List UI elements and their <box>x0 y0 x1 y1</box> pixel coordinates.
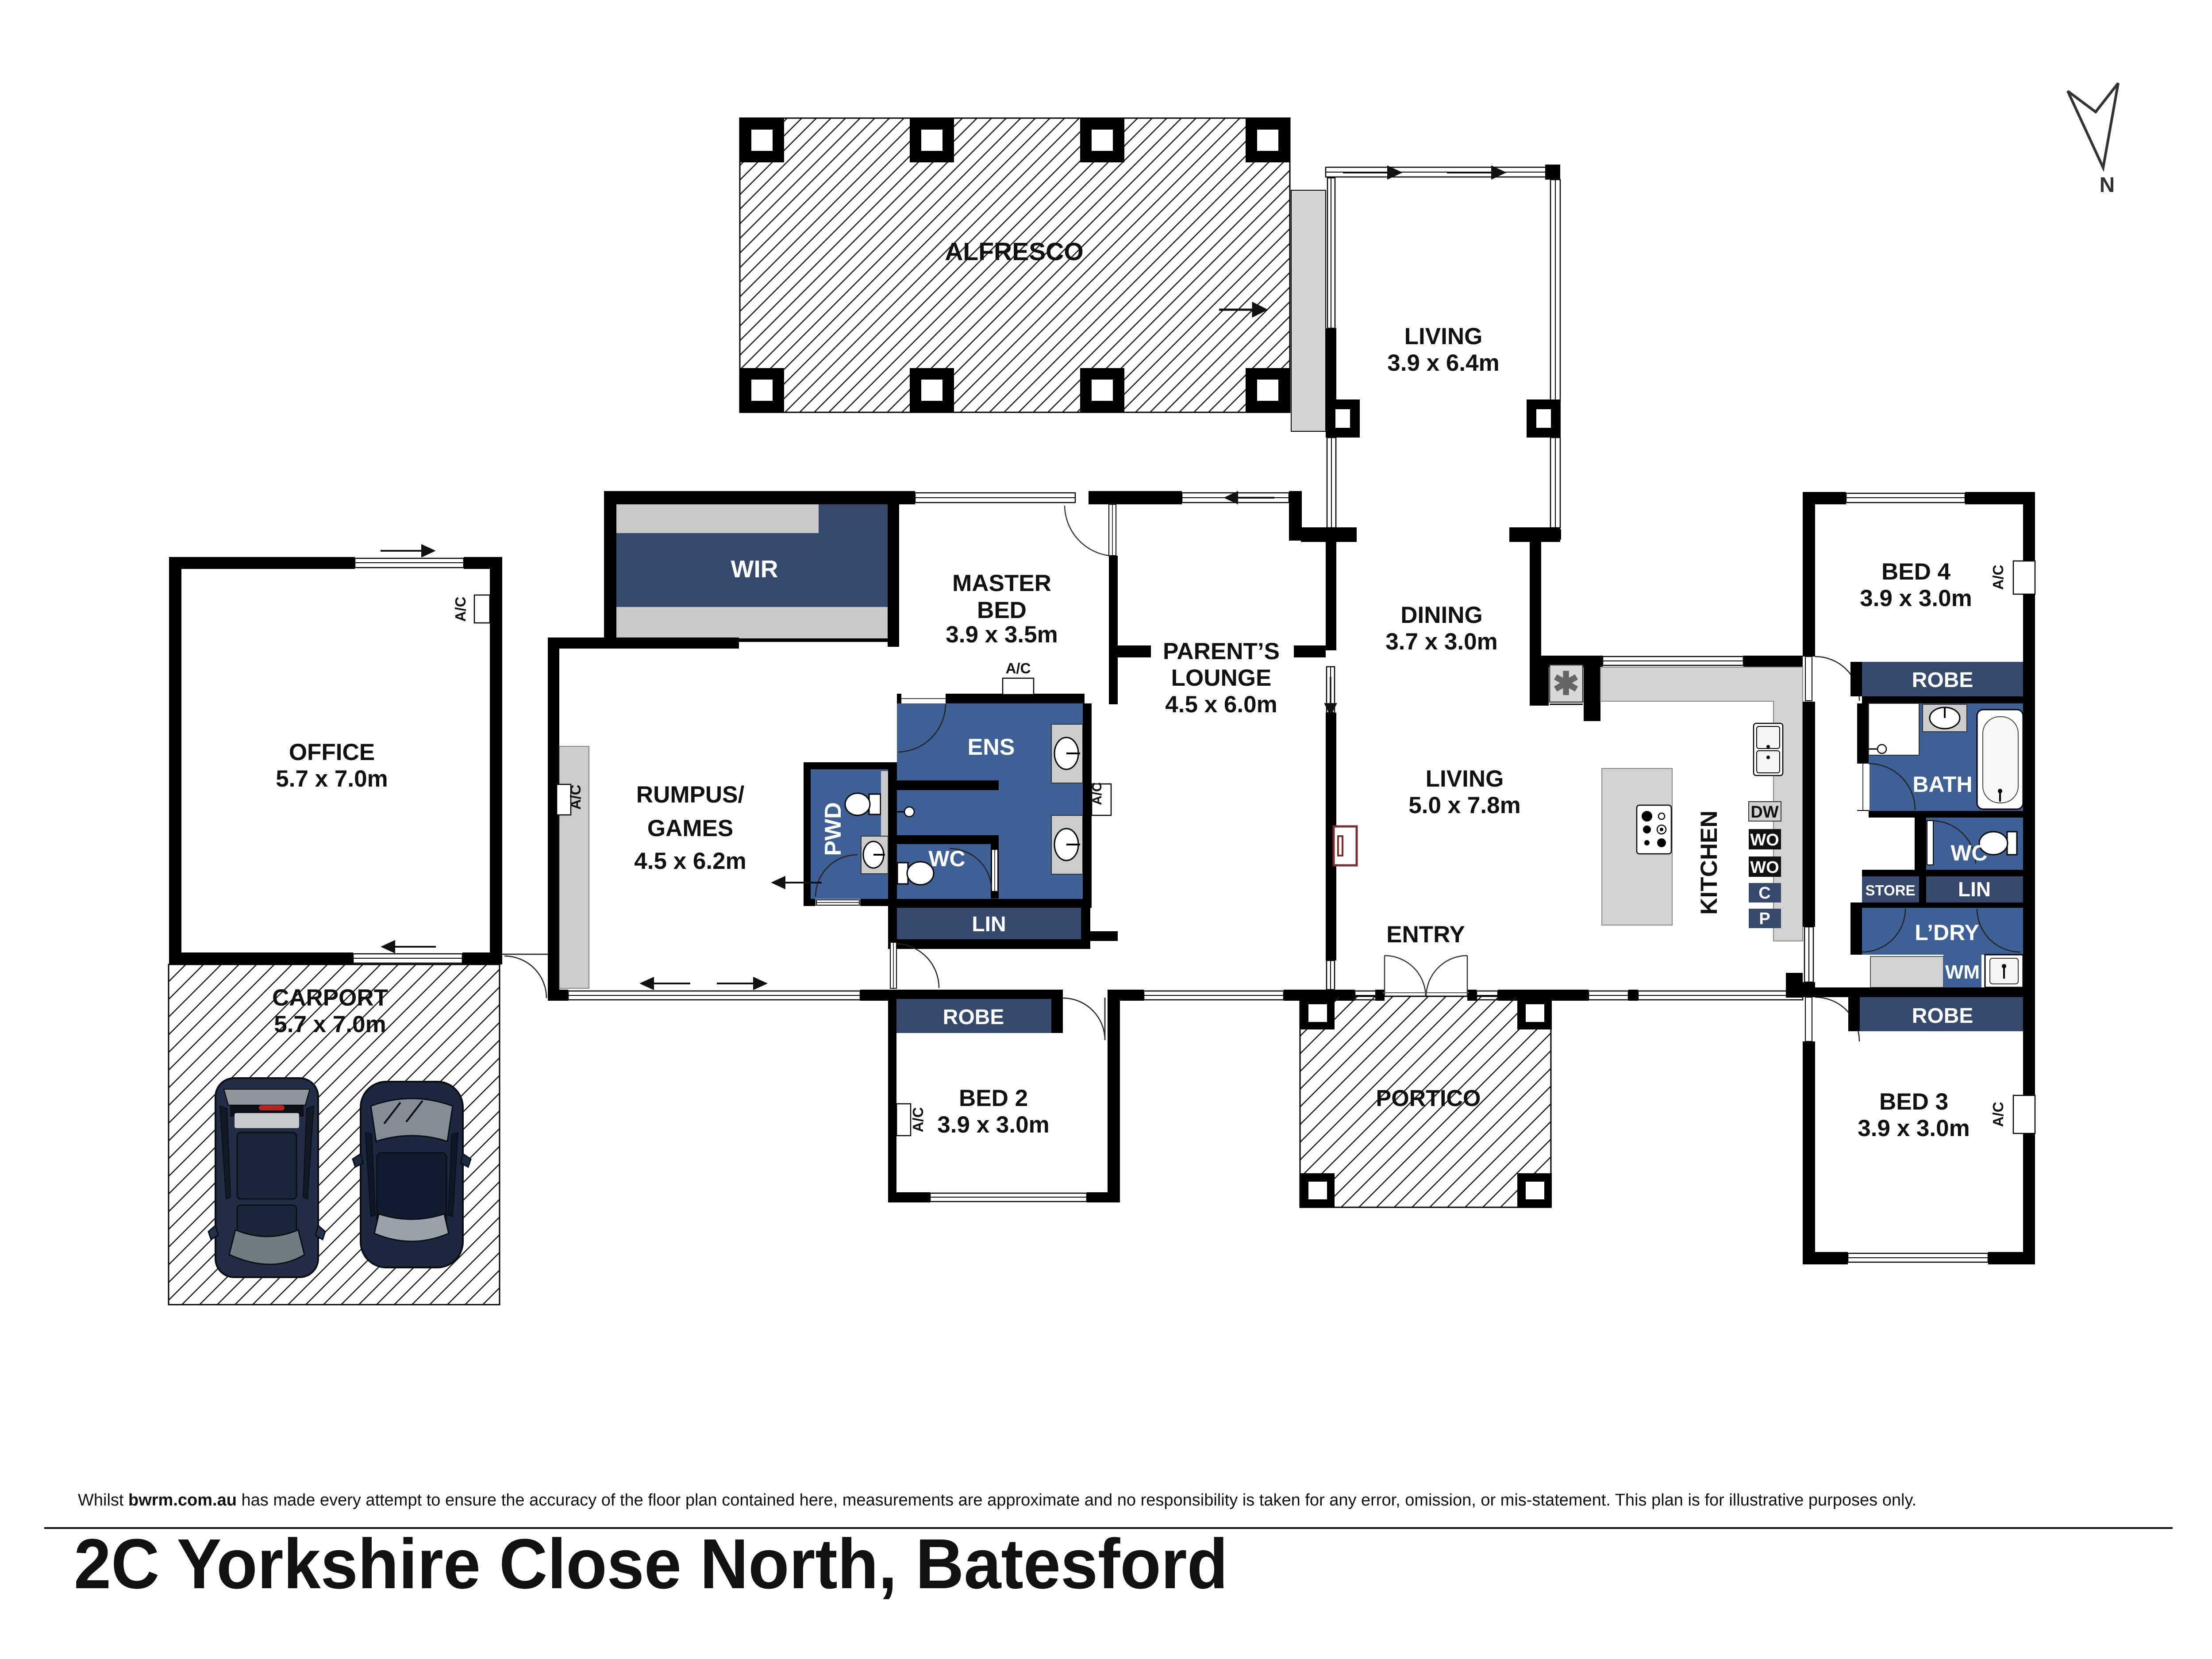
svg-text:3.9 x 6.4m: 3.9 x 6.4m <box>1387 350 1499 376</box>
svg-text:3.9 x 3.0m: 3.9 x 3.0m <box>937 1112 1049 1138</box>
svg-text:PORTICO: PORTICO <box>1376 1086 1481 1111</box>
svg-text:ROBE: ROBE <box>1912 1004 1973 1028</box>
svg-text:A/C: A/C <box>567 785 584 810</box>
svg-text:WC: WC <box>1950 841 1987 865</box>
svg-text:PWD: PWD <box>820 802 846 856</box>
svg-text:WO: WO <box>1750 831 1779 849</box>
svg-text:A/C: A/C <box>1006 660 1031 676</box>
svg-text:ROBE: ROBE <box>1912 668 1973 692</box>
svg-text:WIR: WIR <box>731 555 778 583</box>
svg-text:CARPORT: CARPORT <box>272 985 388 1011</box>
svg-text:ALFRESCO: ALFRESCO <box>945 238 1084 266</box>
svg-text:ROBE: ROBE <box>943 1006 1004 1029</box>
svg-text:ENS: ENS <box>968 734 1015 760</box>
svg-text:5.0 x 7.8m: 5.0 x 7.8m <box>1408 792 1520 818</box>
svg-text:STORE: STORE <box>1865 882 1915 899</box>
svg-text:5.7 x 7.0m: 5.7 x 7.0m <box>276 766 388 792</box>
svg-text:BED 3: BED 3 <box>1879 1089 1948 1115</box>
svg-text:KITCHEN: KITCHEN <box>1696 810 1722 915</box>
svg-text:ENTRY: ENTRY <box>1386 922 1465 948</box>
svg-text:3.9 x 3.5m: 3.9 x 3.5m <box>946 622 1058 648</box>
svg-text:4.5 x 6.0m: 4.5 x 6.0m <box>1165 691 1277 718</box>
svg-text:MASTER: MASTER <box>952 570 1051 596</box>
svg-text:Whilst bwrm.com.au has made ev: Whilst bwrm.com.au has made every attemp… <box>78 1491 1916 1509</box>
svg-text:A/C: A/C <box>452 597 469 622</box>
svg-text:PARENT’S: PARENT’S <box>1163 638 1280 664</box>
svg-text:2C Yorkshire Close North, Bate: 2C Yorkshire Close North, Batesford <box>74 1524 1228 1603</box>
svg-text:WO: WO <box>1750 858 1779 877</box>
svg-text:LIN: LIN <box>972 913 1006 936</box>
svg-text:✱: ✱ <box>1553 666 1579 702</box>
svg-text:BED 4: BED 4 <box>1881 559 1951 585</box>
svg-text:BED: BED <box>977 597 1027 623</box>
svg-text:LIVING: LIVING <box>1404 323 1483 349</box>
svg-text:3.9 x 3.0m: 3.9 x 3.0m <box>1860 585 1972 611</box>
svg-text:RUMPUS/: RUMPUS/ <box>636 782 745 808</box>
svg-text:P: P <box>1759 910 1770 928</box>
svg-text:DW: DW <box>1750 803 1778 822</box>
svg-text:LOUNGE: LOUNGE <box>1171 665 1272 691</box>
svg-text:C: C <box>1758 884 1770 902</box>
svg-text:LIN: LIN <box>1958 878 1991 901</box>
svg-text:3.9 x 3.0m: 3.9 x 3.0m <box>1858 1115 1970 1141</box>
svg-text:BED 2: BED 2 <box>959 1085 1028 1111</box>
svg-text:A/C: A/C <box>1990 565 2006 590</box>
svg-text:OFFICE: OFFICE <box>289 739 375 765</box>
svg-text:N: N <box>2100 173 2115 197</box>
svg-text:5.7 x 7.0m: 5.7 x 7.0m <box>274 1011 386 1037</box>
svg-text:4.5 x 6.2m: 4.5 x 6.2m <box>634 848 746 874</box>
svg-text:L’DRY: L’DRY <box>1915 920 1979 945</box>
svg-text:WM: WM <box>1945 961 1980 983</box>
svg-text:BATH: BATH <box>1912 772 1972 797</box>
svg-text:A/C: A/C <box>910 1107 926 1133</box>
svg-text:DINING: DINING <box>1400 602 1483 628</box>
svg-text:GAMES: GAMES <box>647 815 733 841</box>
svg-text:LIVING: LIVING <box>1426 766 1504 792</box>
svg-text:3.7 x 3.0m: 3.7 x 3.0m <box>1385 629 1497 655</box>
svg-text:A/C: A/C <box>1990 1102 2006 1127</box>
svg-text:A/C: A/C <box>1090 782 1104 805</box>
